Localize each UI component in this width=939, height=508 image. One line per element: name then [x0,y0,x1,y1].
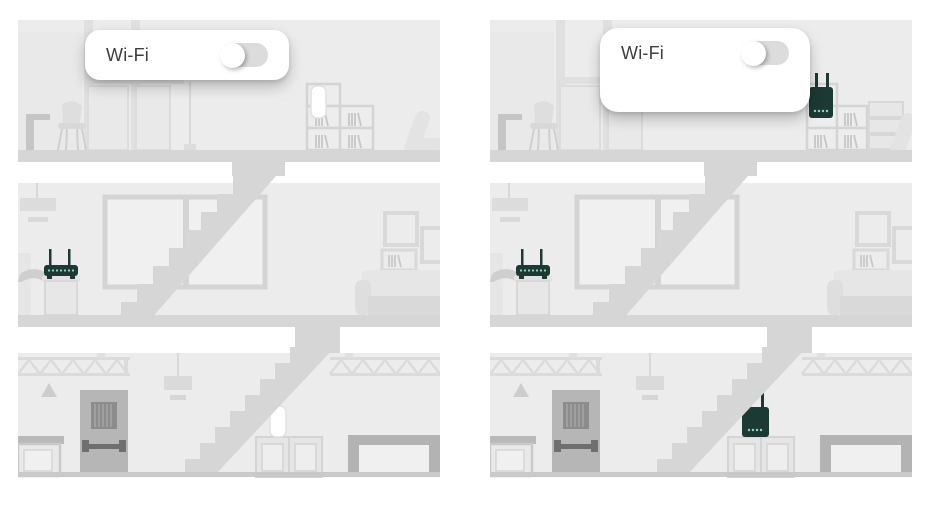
house-cross-section [18,20,440,490]
scene-before: Wi-Fi [18,20,440,490]
floor-slab-middle [18,315,440,327]
toggle-knob[interactable] [220,43,245,68]
wall-shelf-books [854,250,888,270]
cabinet [256,437,322,477]
wifi-extender-top-icon [311,86,326,118]
counter-left [18,436,64,476]
wifi-card: Wi-Fi [85,30,289,80]
ground-line [490,472,912,477]
sofa [355,270,440,315]
workbench-right [820,435,912,476]
wifi-label: Wi-Fi [106,45,149,66]
wifi-label: Wi-Fi [621,43,664,64]
wifi-extender-illustration: Wi-Fi [0,0,939,508]
pendant-cord [189,82,191,144]
floor-slab-top [490,150,912,162]
ground-line [18,472,440,477]
toggle-knob[interactable] [741,41,766,66]
workbench-right [348,435,440,476]
wifi-toggle[interactable] [742,41,789,65]
wall-shelf-books [382,250,416,270]
picture-frame [857,213,889,245]
floor-slab-top [18,150,440,162]
router-table [514,276,552,315]
exit-door [552,390,600,476]
router-table [42,276,80,315]
floor-slab-middle [490,315,912,327]
picture-frame [385,213,417,245]
wifi-card: Wi-Fi [600,28,810,112]
scene-after: Wi-Fi [490,20,912,490]
picture-frame-2 [894,228,912,262]
sofa [827,270,912,315]
counter-left [490,436,536,476]
cabinet [728,437,794,477]
wifi-toggle[interactable] [221,43,268,67]
picture-frame-2 [422,228,440,262]
exit-door [80,390,128,476]
